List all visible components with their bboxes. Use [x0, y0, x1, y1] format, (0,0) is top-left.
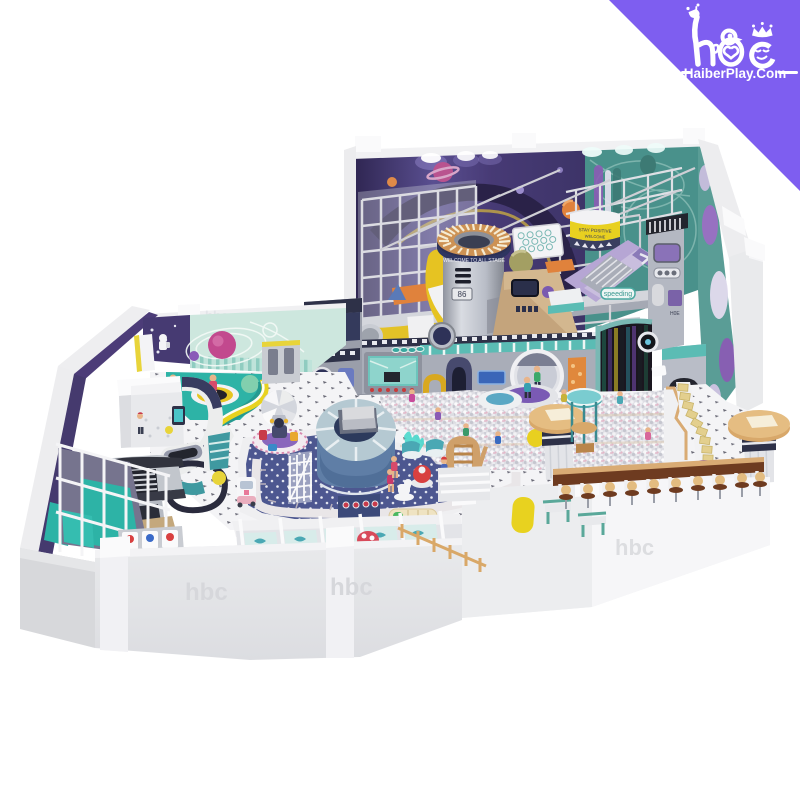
svg-text:hbc: hbc: [615, 535, 654, 560]
svg-text:WELCOME TO ALL STAGE: WELCOME TO ALL STAGE: [443, 258, 505, 264]
svg-text:86: 86: [458, 290, 467, 299]
svg-text:hbc: hbc: [185, 579, 228, 606]
svg-text:hbc: hbc: [330, 574, 373, 601]
svg-text:H0E: H0E: [670, 311, 680, 317]
svg-text:speeding: speeding: [604, 291, 633, 298]
svg-text:HaiberPlay.Com: HaiberPlay.Com: [684, 66, 787, 81]
